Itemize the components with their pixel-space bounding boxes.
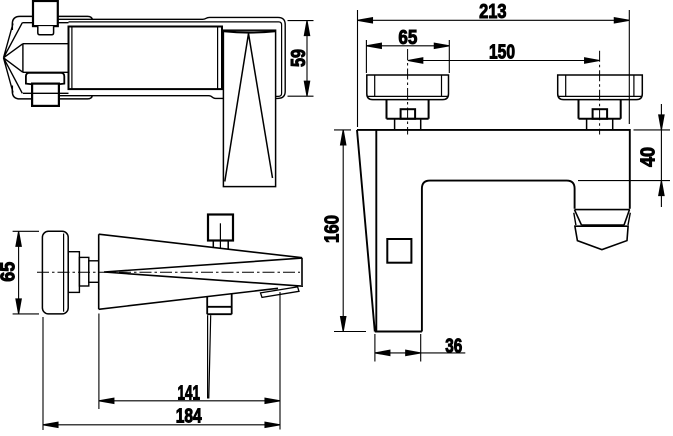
- svg-text:40: 40: [638, 147, 660, 167]
- svg-text:59: 59: [288, 49, 310, 67]
- svg-text:184: 184: [176, 406, 203, 428]
- svg-text:160: 160: [322, 215, 344, 243]
- svg-text:150: 150: [489, 41, 515, 63]
- svg-text:36: 36: [445, 335, 462, 357]
- svg-text:213: 213: [479, 1, 506, 23]
- svg-text:65: 65: [398, 27, 417, 49]
- svg-text:141: 141: [177, 382, 200, 404]
- svg-text:65: 65: [0, 262, 20, 282]
